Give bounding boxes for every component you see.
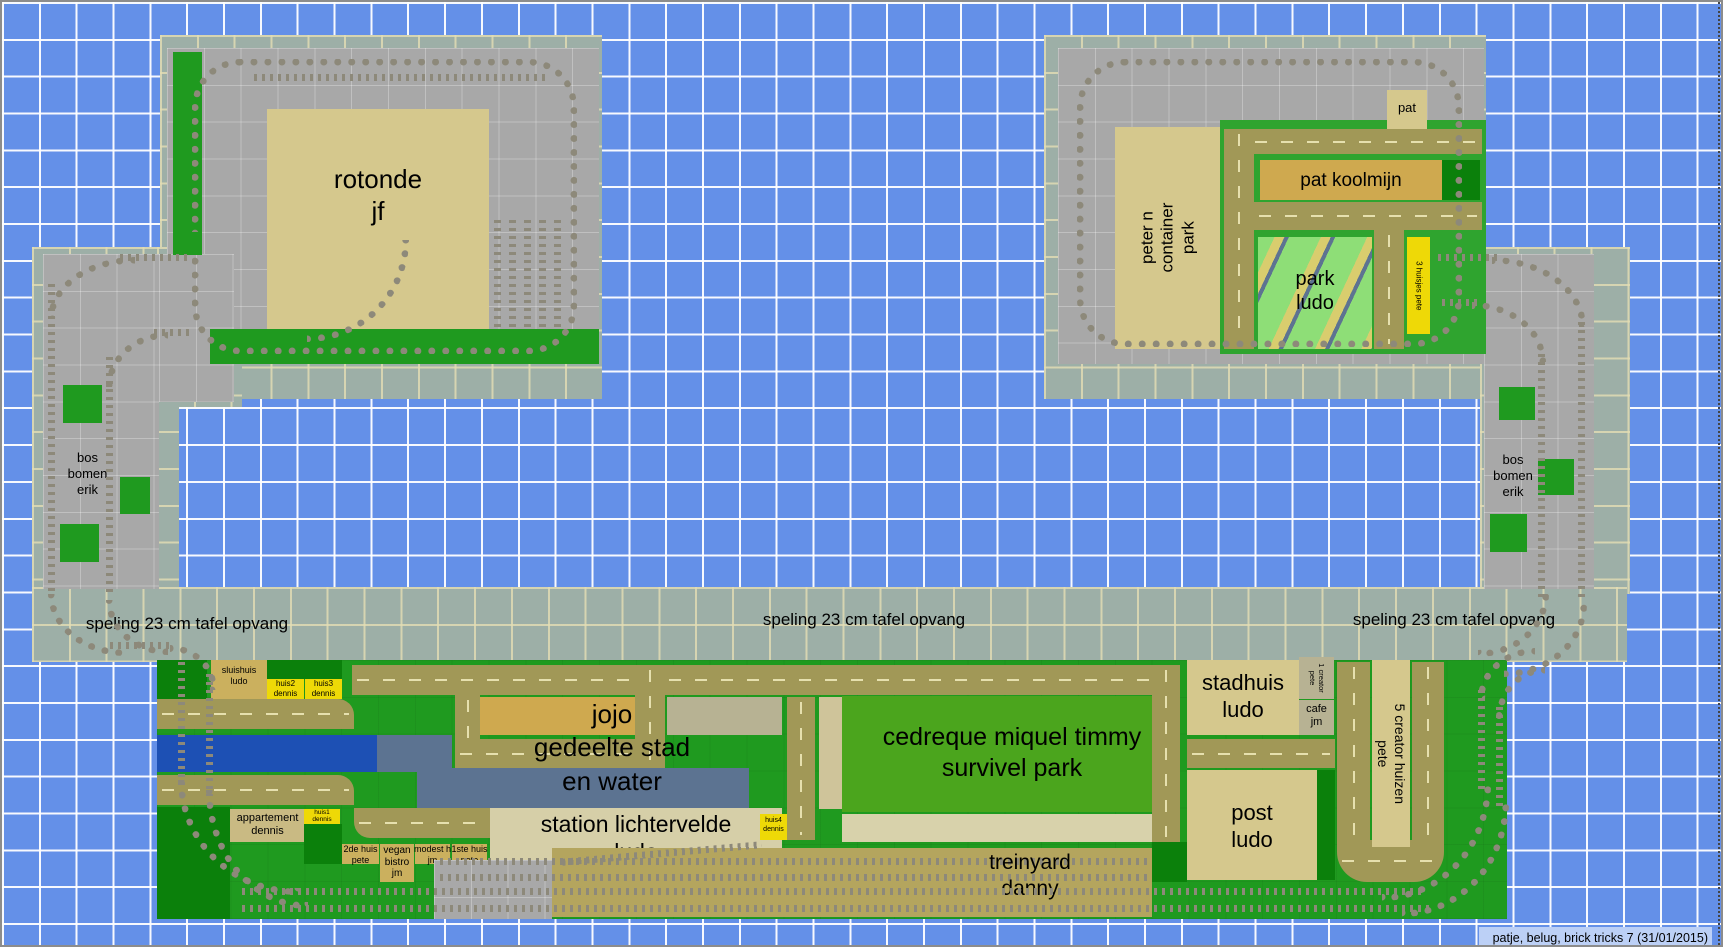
track-stub-tr-1[interactable]: [1442, 299, 1482, 306]
post-label[interactable]: post ludo: [1187, 800, 1317, 854]
sluishuis-label[interactable]: sluishuis ludo: [211, 665, 267, 687]
track-corridor-left-2[interactable]: [106, 357, 113, 597]
track-corridor-right-2[interactable]: [1578, 322, 1585, 597]
footer-note: patje, belug, brick tricks 7 (31/01/2015…: [1493, 931, 1708, 945]
road-marktplein[interactable]: [787, 697, 815, 840]
track-stub-tr-2[interactable]: [1438, 254, 1500, 261]
page-edge-dotted: [1718, 2, 1720, 947]
speling-label-middle[interactable]: speling 23 cm tafel opvang: [744, 610, 984, 631]
road-city-4[interactable]: [354, 808, 490, 838]
post-green-strip[interactable]: [1317, 770, 1335, 880]
stadhuis-label[interactable]: stadhuis ludo: [1187, 670, 1299, 724]
green-square[interactable]: [1490, 514, 1527, 552]
track-siding-4[interactable]: [539, 220, 546, 332]
track-corridor-right-1[interactable]: [1538, 354, 1545, 597]
track-stub[interactable]: [120, 254, 192, 261]
track-stub[interactable]: [154, 329, 194, 336]
jojo-label[interactable]: jojo gedeelte stad en water: [482, 698, 742, 798]
track-mainline-1[interactable]: [242, 888, 1422, 895]
road-city-top[interactable]: [352, 665, 1154, 695]
huis3-label[interactable]: huis3 dennis: [305, 679, 342, 699]
water-slate-1[interactable]: [377, 735, 452, 772]
road-park-east[interactable]: [1152, 665, 1180, 842]
track-band-curve-r3[interactable]: [1504, 604, 1587, 677]
cedreque-label[interactable]: cedreque miquel timmy survivel park: [872, 722, 1152, 783]
road-city-2[interactable]: [157, 699, 354, 729]
huis-2de-label[interactable]: 2de huis pete: [339, 844, 382, 866]
layout-canvas: rotonde jf peter n container park pat pa…: [0, 0, 1723, 947]
track-city-right-2[interactable]: [1496, 707, 1503, 807]
track-siding-1[interactable]: [494, 220, 501, 332]
green-dark-block[interactable]: [267, 660, 342, 679]
track-siding-2[interactable]: [509, 220, 516, 332]
footer-note-box: patje, belug, brick tricks 7 (31/01/2015…: [1479, 927, 1712, 947]
green-square[interactable]: [173, 232, 202, 255]
huis2-label[interactable]: huis2 dennis: [267, 679, 304, 699]
bos-bomen-left-label[interactable]: bos bomen erik: [50, 450, 125, 498]
huis1-label[interactable]: huis1 dennis: [304, 809, 340, 823]
track-mainline-2[interactable]: [242, 905, 1432, 912]
track-corridor-left-1[interactable]: [48, 284, 55, 596]
green-square[interactable]: [1499, 387, 1535, 420]
water-blue[interactable]: [157, 735, 377, 772]
green-square[interactable]: [63, 385, 102, 423]
track-inner-top[interactable]: [254, 74, 549, 81]
platform-strip[interactable]: [842, 814, 1152, 842]
huis4-label[interactable]: huis4 dennis: [757, 817, 790, 834]
track-siding-5[interactable]: [554, 220, 561, 332]
track-siding-3[interactable]: [524, 220, 531, 332]
track-city-right-1[interactable]: [1478, 690, 1485, 790]
green-square[interactable]: [60, 524, 99, 562]
track-loop-top-right[interactable]: [1077, 59, 1462, 347]
green-dark-block[interactable]: [1152, 842, 1187, 882]
rotonde-label[interactable]: rotonde jf: [278, 164, 478, 227]
track-city-left-2[interactable]: [206, 674, 213, 796]
vegan-label[interactable]: vegan bistro jm: [380, 845, 414, 880]
